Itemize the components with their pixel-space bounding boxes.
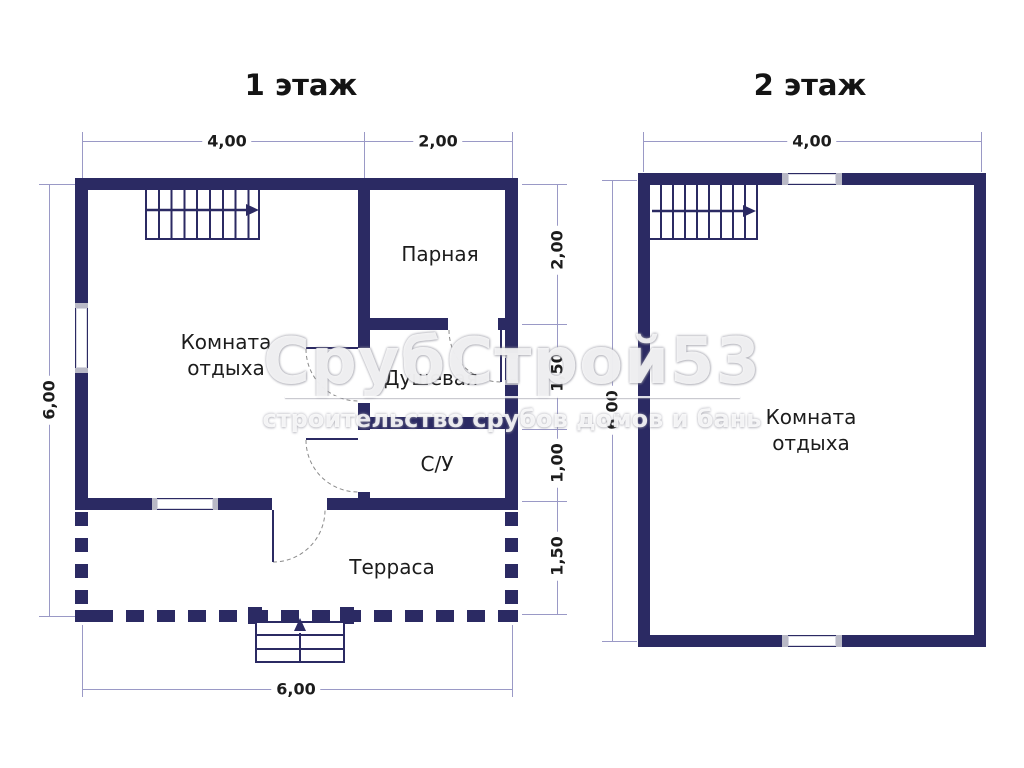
plan1-window-bottom-cap-left xyxy=(152,498,157,510)
wc-door-arc xyxy=(306,440,358,492)
plan1-room-rest-label: Комната отдыха xyxy=(156,329,296,381)
plan1-room-terrace-label: Терраса xyxy=(349,554,434,580)
plan2-dim-ext xyxy=(602,641,637,642)
plan1-dim-top-right: 2,00 xyxy=(413,132,462,151)
plan2-window-bottom xyxy=(788,636,836,646)
plan2-window-top-cap-right xyxy=(836,173,842,185)
plan1-wall-steam-divider-stub xyxy=(498,318,505,330)
plan1-dim-right-3: 1,00 xyxy=(548,438,567,487)
plan2-wall-left xyxy=(638,173,650,647)
floor-plan-sheet: 1 этаж 2 этаж xyxy=(0,0,1024,768)
plan1-wall-steam-divider xyxy=(358,318,448,330)
plan1-dim-ext xyxy=(512,132,513,178)
entry-steps-arrow-shaft xyxy=(299,633,301,661)
plan1-dim-ext xyxy=(522,324,567,325)
plan1-dim-ext xyxy=(82,625,83,697)
plan1-dim-ext xyxy=(39,184,75,185)
plan1-window-left-cap-top xyxy=(75,303,88,308)
plan1-window-right-cap-top xyxy=(505,353,518,358)
plan1-dim-top-left: 4,00 xyxy=(202,132,251,151)
shower-door-arc xyxy=(306,349,358,401)
plan1-window-bottom-cap-right xyxy=(213,498,218,510)
plan1-dim-ext xyxy=(512,625,513,697)
plan1-room-steam-label: Парная xyxy=(401,241,478,267)
plan1-window-bottom xyxy=(157,499,213,509)
plan2-wall-right xyxy=(974,173,986,647)
plan1-window-right xyxy=(506,358,517,380)
plan1-title: 1 этаж xyxy=(245,68,358,102)
plan1-dim-right-1: 2,00 xyxy=(548,225,567,274)
plan1-dim-right-2: 1,50 xyxy=(548,347,567,396)
plan1-dim-ext xyxy=(522,184,567,185)
plan1-dim-ext xyxy=(364,132,365,178)
plan2-dim-ext xyxy=(602,180,637,181)
plan1-window-left-cap-bottom xyxy=(75,368,88,373)
plan1-room-shower-label: Душевая xyxy=(384,365,478,391)
terrace-corner-post-right xyxy=(498,610,518,622)
plan2-dim-ext xyxy=(981,132,982,172)
plan1-dim-right-4: 1,50 xyxy=(548,531,567,580)
plan2-window-bottom-cap-right xyxy=(836,635,842,647)
plan1-dim-bottom: 6,00 xyxy=(271,680,320,699)
plan1-dim-ext xyxy=(522,429,567,430)
plan1-wall-right xyxy=(505,178,518,510)
plan1-dim-ext xyxy=(522,614,567,615)
plan2-title: 2 этаж xyxy=(754,68,867,102)
plan2-room-rest-label: Комната отдыха xyxy=(741,404,881,456)
plan1-wall-shower-wc-divider xyxy=(358,417,505,429)
plan2-stairs xyxy=(650,185,758,240)
plan2-window-bottom-cap-left xyxy=(782,635,788,647)
plan2-dim-ext xyxy=(643,132,644,172)
terrace-corner-post-left xyxy=(75,610,95,622)
plan1-stairs xyxy=(145,190,260,240)
plan1-dim-ext xyxy=(522,501,567,502)
plan1-window-right-cap-bottom xyxy=(505,380,518,385)
terrace-wall-right-dashed xyxy=(505,512,518,610)
terrace-door-opening xyxy=(272,498,327,510)
plan2-window-top-cap-left xyxy=(782,173,788,185)
plan2-window-top xyxy=(788,174,836,184)
plan1-window-left xyxy=(76,308,87,368)
plan2-dim-top: 4,00 xyxy=(787,132,836,151)
plan1-dim-ext xyxy=(39,616,75,617)
plan1-room-wc-label: С/У xyxy=(421,451,454,477)
terrace-door-arc xyxy=(273,510,325,562)
plan1-wall-interior-vertical-stub xyxy=(358,492,370,510)
plan1-dim-ext xyxy=(82,132,83,178)
terrace-wall-left-dashed xyxy=(75,512,88,610)
plan2-dim-left: 6,00 xyxy=(603,385,622,434)
plan1-dim-left: 6,00 xyxy=(40,375,59,424)
plan1-wall-top xyxy=(75,178,518,190)
